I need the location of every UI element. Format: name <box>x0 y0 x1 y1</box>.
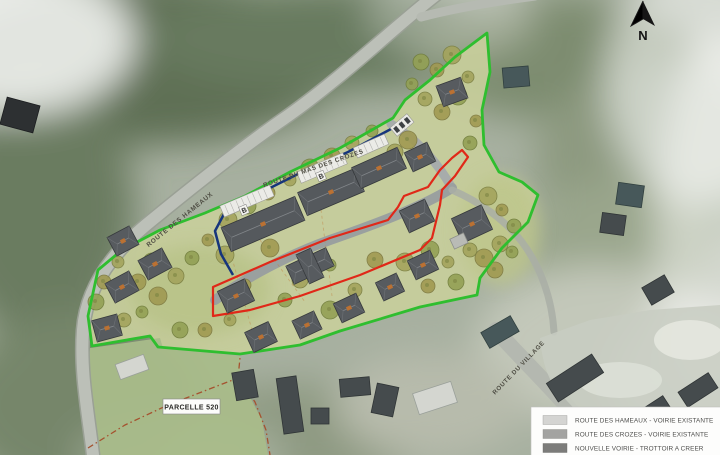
tree-shadow <box>418 59 422 63</box>
tree-shadow <box>405 137 409 141</box>
tree-shadow <box>402 259 406 263</box>
building-teal <box>616 182 645 207</box>
tree-shadow <box>372 257 376 261</box>
tree-shadow <box>449 52 453 56</box>
building-dark <box>311 408 329 424</box>
tree-shadow <box>267 245 271 249</box>
tree-shadow <box>485 193 489 197</box>
tree-shadow <box>497 241 501 245</box>
tree-shadow <box>202 327 206 331</box>
legend-swatch-crozes <box>543 430 567 439</box>
legend-row-3: NOUVELLE VOIRIE - TROTTOIR A CREER <box>543 444 704 453</box>
tree-shadow <box>121 317 125 321</box>
parcel-520-text: PARCELLE 520 <box>164 405 218 412</box>
legend-label-1: ROUTE DES HAMEAUX - VOIRIE EXISTANTE <box>575 418 713 425</box>
tree-shadow <box>467 247 471 251</box>
north-label: N <box>638 28 647 43</box>
tree-shadow <box>352 287 356 291</box>
tree-shadow <box>445 259 449 263</box>
legend-label-2: ROUTE DES CROZES - VOIRIE EXISTANTE <box>575 432 708 439</box>
building-dark <box>339 377 370 398</box>
tree-shadow <box>467 140 471 144</box>
tree-shadow <box>434 67 438 71</box>
tree-shadow <box>473 118 477 122</box>
building-dark <box>232 369 259 400</box>
tree-shadow <box>327 307 331 311</box>
tree-shadow <box>227 317 231 321</box>
tree-shadow <box>409 81 413 85</box>
tree-shadow <box>115 259 119 263</box>
tree-shadow <box>155 293 159 297</box>
tree-shadow <box>439 109 443 113</box>
tree-shadow <box>225 217 229 221</box>
legend-label-3: NOUVELLE VOIRIE - TROTTOIR A CREER <box>575 446 704 453</box>
tree-shadow <box>499 207 503 211</box>
tree-shadow <box>189 255 193 259</box>
legend-swatch-nouvelle-voirie <box>543 444 567 453</box>
site-plan-map: B B ROUTE DES HAMEAUX ROUTE DU MAS DES C… <box>0 0 720 455</box>
tree-shadow <box>511 223 515 227</box>
tree-shadow <box>453 279 457 283</box>
tree-shadow <box>425 283 429 287</box>
tree-shadow <box>205 237 209 241</box>
tree-shadow <box>139 309 143 313</box>
tree-shadow <box>135 279 139 283</box>
tree-shadow <box>93 299 97 303</box>
parcel-520-label: PARCELLE 520 <box>163 399 220 414</box>
aerial-plan-canvas: B B ROUTE DES HAMEAUX ROUTE DU MAS DES C… <box>0 0 720 455</box>
tree-shadow <box>173 273 177 277</box>
tree-shadow <box>177 327 181 331</box>
building-dark <box>600 212 627 235</box>
tree-shadow <box>509 249 513 253</box>
tree-shadow <box>492 267 496 271</box>
tree-shadow <box>422 96 426 100</box>
tree-shadow <box>465 74 469 78</box>
legend: ROUTE DES HAMEAUX - VOIRIE EXISTANTE ROU… <box>531 407 720 455</box>
tree-shadow <box>481 255 485 259</box>
building-teal <box>502 66 530 88</box>
tree-shadow <box>101 279 105 283</box>
legend-swatch-hameaux <box>543 416 567 425</box>
